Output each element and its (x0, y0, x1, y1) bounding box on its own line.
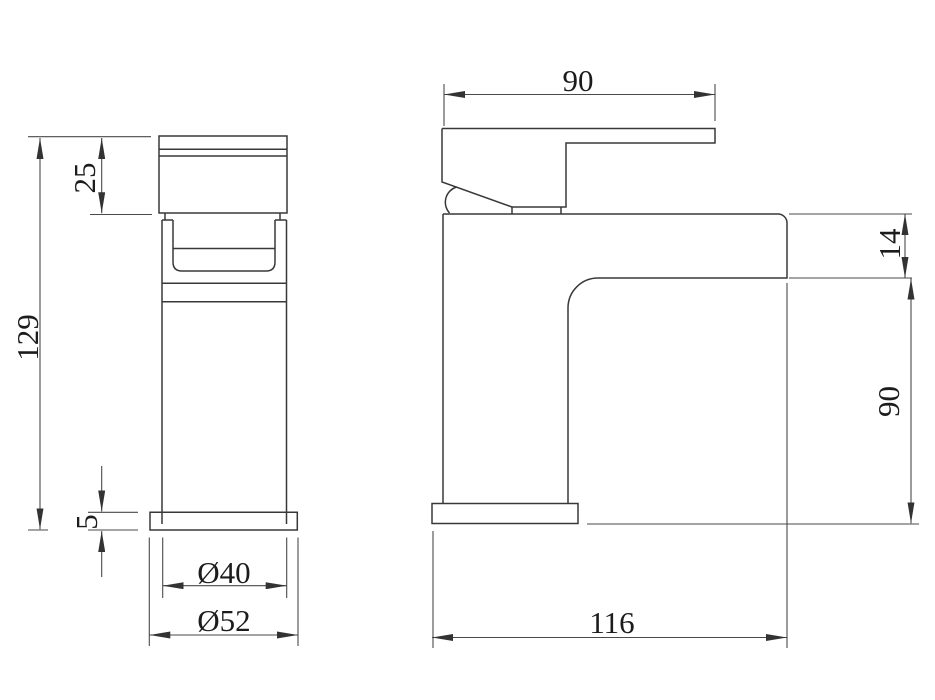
front-view (150, 136, 297, 530)
dim-label-overall-depth: 116 (589, 605, 634, 640)
front-base-plate (150, 512, 297, 530)
side-base-plate (432, 504, 578, 524)
side-body-outline (443, 214, 787, 504)
dim-label-handle-length: 90 (563, 63, 594, 98)
side-view (432, 129, 787, 524)
dim-label-base-diameter: Ø52 (197, 603, 250, 638)
side-handle-left-edge (442, 129, 512, 208)
dim-label-base-thickness: 5 (69, 514, 104, 530)
front-head-outline (159, 136, 287, 213)
dim-label-spout-thickness: 14 (872, 228, 907, 260)
side-spout-lip-arc (445, 187, 456, 213)
front-spout-window (173, 220, 275, 271)
dim-label-body-height: 90 (871, 386, 906, 417)
drawing-canvas: 129 25 5 Ø40 Ø52 90 1 (0, 0, 935, 700)
side-handle-outline (442, 129, 715, 208)
dim-label-body-diameter: Ø40 (197, 555, 250, 590)
technical-drawing: 129 25 5 Ø40 Ø52 90 1 (0, 0, 935, 700)
side-dimensions: 90 14 90 116 (432, 63, 919, 648)
dim-label-overall-height: 129 (10, 314, 45, 361)
dim-label-head-height: 25 (67, 163, 102, 194)
